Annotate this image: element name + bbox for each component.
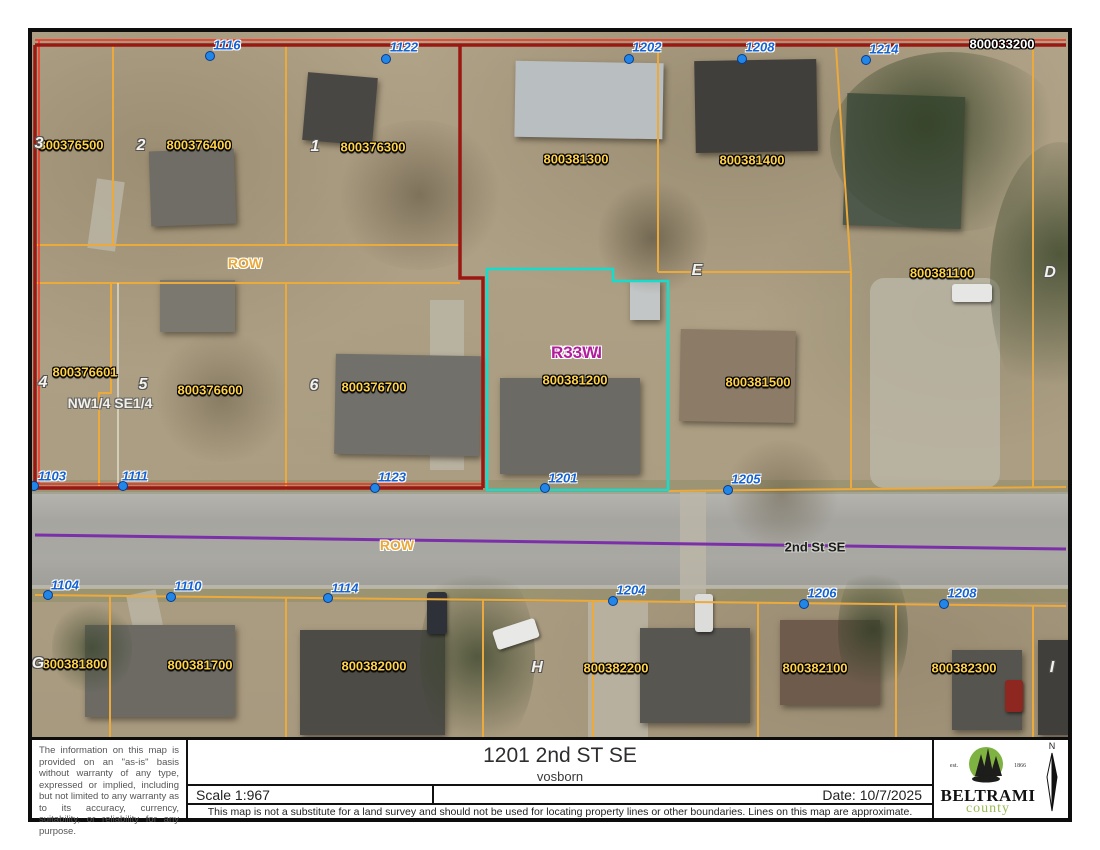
parcel-label-800381400: 800381400 xyxy=(719,153,784,168)
address-label-1122: 1122 xyxy=(390,40,418,55)
address-label-1116: 1116 xyxy=(214,38,241,53)
address-label-1201: 1201 xyxy=(549,471,578,486)
logo-year-text: 1866 xyxy=(1014,763,1026,769)
parcel-label-800382300: 800382300 xyxy=(931,661,996,676)
parcel-label-800381300: 800381300 xyxy=(543,152,608,167)
aerial-map: 1116112212021208121411031111112312011205… xyxy=(32,32,1068,737)
address-point-1201 xyxy=(540,483,550,493)
row-label-top: ROW xyxy=(228,255,262,271)
disclaimer-side-text: The information on this map is provided … xyxy=(39,745,179,837)
map-annotations: 1116112212021208121411031111112312011205… xyxy=(32,32,1068,737)
address-point-1110 xyxy=(166,592,176,602)
lot-number-3: 3 xyxy=(35,135,44,153)
plss-quarter-label: NW1/4 SE1/4 xyxy=(68,395,153,411)
north-arrow-label: N xyxy=(1042,741,1062,751)
address-point-1208 xyxy=(939,599,949,609)
title-block-center: 1201 2nd ST SE vosborn Scale 1:967 Date:… xyxy=(188,740,932,818)
address-label-1110: 1110 xyxy=(175,579,202,594)
address-label-1103: 1103 xyxy=(38,469,66,484)
address-point-1208 xyxy=(737,54,747,64)
lot-number-5: 5 xyxy=(139,376,148,394)
parcel-label-800382200: 800382200 xyxy=(583,661,648,676)
parcel-label-800381800: 800381800 xyxy=(42,657,107,672)
address-label-1114: 1114 xyxy=(332,581,359,596)
parcel-label-800376300: 800376300 xyxy=(340,140,405,155)
address-label-1205: 1205 xyxy=(732,472,761,487)
street-name-label: 2nd St SE xyxy=(785,540,846,555)
disclaimer-bottom-text: This map is not a substitute for a land … xyxy=(188,805,932,818)
map-title: 1201 2nd ST SE xyxy=(188,740,932,769)
address-label-1104: 1104 xyxy=(51,578,79,593)
parcel-label-800381100: 800381100 xyxy=(910,266,974,281)
block-letter-D: D xyxy=(1044,264,1056,282)
address-point-1123 xyxy=(370,483,380,493)
pine-trees-icon xyxy=(960,744,1012,788)
address-point-1103 xyxy=(32,481,39,491)
block-letter-E: E xyxy=(692,262,703,280)
address-label-1206: 1206 xyxy=(808,586,837,601)
address-point-1114 xyxy=(323,593,333,603)
address-label-1214: 1214 xyxy=(870,42,899,57)
parcel-label-800033200: 800033200 xyxy=(969,37,1034,52)
scale-date-row: Scale 1:967 Date: 10/7/2025 xyxy=(188,784,932,805)
parcel-label-800382100: 800382100 xyxy=(782,661,847,676)
address-point-1206 xyxy=(799,599,809,609)
map-scale: Scale 1:967 xyxy=(188,786,434,803)
address-point-1122 xyxy=(381,54,391,64)
address-point-1104 xyxy=(43,590,53,600)
north-arrow: N xyxy=(1042,741,1062,818)
address-point-1116 xyxy=(205,51,215,61)
address-point-1204 xyxy=(608,596,618,606)
parcel-label-800376400: 800376400 xyxy=(166,138,231,153)
parcel-label-800381700: 800381700 xyxy=(167,658,232,673)
address-label-1208: 1208 xyxy=(746,40,775,55)
disclaimer-box: The information on this map is provided … xyxy=(32,740,188,818)
title-block: The information on this map is provided … xyxy=(32,737,1068,818)
parcel-label-800376500: 800376500 xyxy=(38,138,103,153)
parcel-label-800381500: 800381500 xyxy=(725,375,790,390)
row-label-road: ROW xyxy=(380,537,414,553)
address-label-1123: 1123 xyxy=(378,470,406,485)
address-label-1204: 1204 xyxy=(617,583,646,598)
parcel-label-800376601: 800376601 xyxy=(52,365,117,380)
lot-number-6: 6 xyxy=(310,377,319,395)
block-letter-I: I xyxy=(1050,659,1054,677)
parcel-label-800376600: 800376600 xyxy=(177,383,242,398)
parcel-label-800376700: 800376700 xyxy=(341,380,406,395)
map-author: vosborn xyxy=(188,769,932,784)
address-label-1202: 1202 xyxy=(633,40,662,55)
logo-box: est. 1866 xyxy=(932,740,1066,818)
north-arrow-icon xyxy=(1042,751,1062,813)
lot-number-4: 4 xyxy=(39,374,48,392)
beltrami-county-logo: est. 1866 xyxy=(940,744,1036,815)
lot-number-2: 2 xyxy=(137,137,146,155)
map-date: Date: 10/7/2025 xyxy=(434,786,932,803)
map-sheet: 1116112212021208121411031111112312011205… xyxy=(28,28,1072,822)
block-letter-H: H xyxy=(531,659,543,677)
address-point-1214 xyxy=(861,55,871,65)
address-point-1205 xyxy=(723,485,733,495)
address-point-1202 xyxy=(624,54,634,64)
address-point-1111 xyxy=(118,481,128,491)
parcel-label-800381200: 800381200 xyxy=(542,373,607,388)
address-label-1208: 1208 xyxy=(948,586,977,601)
lot-number-1: 1 xyxy=(311,138,320,156)
logo-est-text: est. xyxy=(950,763,958,769)
parcel-label-800382000: 800382000 xyxy=(341,659,406,674)
block-letter-G: G xyxy=(32,655,44,673)
